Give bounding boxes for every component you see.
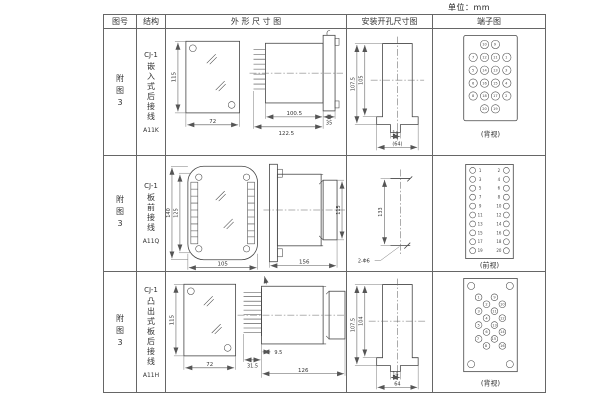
dim-front-w: 72 (206, 361, 213, 367)
dim-body-len: 126 (298, 367, 309, 373)
dim-front-inner-h: 125 (174, 208, 180, 217)
dim-inner-h: 105 (358, 75, 364, 84)
header-outline: 外 形 尺 寸 图 (166, 15, 347, 29)
outline-cell-row2: 140 125 105 156 115 (166, 156, 347, 272)
dim-total-w: 64 (394, 381, 400, 387)
outline-drawing-a11k: 115 72 100.5 35 122.5 (166, 29, 346, 156)
structure-text: 凸出式板后接线 (146, 297, 157, 367)
model-code: A11Q (143, 238, 159, 245)
outline-drawing-a11h: 115 72 31.5 9.5 126 (166, 272, 346, 393)
install-cell-row2: 133 2-Φ6 (347, 156, 433, 272)
structure-row1: CJ-1 嵌入式后接线 A11K (137, 29, 166, 156)
install-drawing-a11h: 107.5 104 14 64 (347, 272, 432, 393)
fig-no-text: 附图3 (115, 74, 126, 111)
view-label: (背视) (481, 378, 501, 387)
outline-drawing-a11q: 140 125 105 156 115 (166, 156, 346, 272)
dim-pin-len: 31.5 (247, 363, 258, 369)
header-fig-no: 图号 (104, 15, 137, 29)
dim-front-outer-h: 140 (166, 208, 172, 217)
terminal-numbers-left: 135791113151719 (478, 167, 484, 252)
terminal-drawing-a11q: 135791113151719 2468101214161820 (前视) (433, 156, 545, 272)
dim-side-h: 115 (336, 205, 342, 214)
terminal-cell-row3: 1357 2468 9111315 10121416 (背视) (433, 272, 546, 393)
terminal-cell-row1: 109 712111 514133 616154 818172 2019 (背视… (433, 29, 546, 156)
fig-no-row2: 附图3 (104, 156, 137, 272)
model-label: CJ-1 (144, 182, 158, 190)
outline-cell-row3: 115 72 31.5 9.5 126 (166, 272, 347, 393)
install-cell-row3: 107.5 104 14 64 (347, 272, 433, 393)
dim-slot-w: 14 (392, 371, 398, 377)
model-label: CJ-1 (144, 286, 158, 294)
dim-side-len: 156 (299, 259, 310, 265)
dim-hole-spacing: 133 (378, 207, 384, 216)
dim-holes: 2-Φ6 (358, 258, 370, 264)
dim-flange: 35 (326, 120, 332, 126)
header-terminal: 端子图 (433, 15, 546, 29)
spec-table: 图号 结构 外 形 尺 寸 图 安装开孔尺寸图 端子图 附图3 CJ-1 嵌入式… (103, 14, 546, 393)
model-code: A11H (143, 372, 159, 379)
dim-total: 122.5 (279, 130, 295, 136)
dim-body-len: 100.5 (286, 110, 302, 116)
model-code: A11K (143, 127, 159, 134)
header-install: 安装开孔尺寸图 (347, 15, 433, 29)
dim-outer-h: 107.5 (350, 77, 356, 91)
dim-outer-h: 107.5 (350, 318, 356, 332)
structure-text: 嵌入式后接线 (146, 62, 157, 122)
terminal-numbers: 1357 2468 9111315 10121416 (477, 295, 505, 348)
terminal-drawing-a11k: 109 712111 514133 616154 818172 2019 (背视… (433, 29, 545, 156)
dim-front-w: 72 (209, 118, 216, 124)
fig-no-row1: 附图3 (104, 29, 137, 156)
unit-label: 单位：mm (448, 2, 490, 13)
dim-offset: 9.5 (274, 349, 282, 355)
terminal-cell-row2: 135791113151719 2468101214161820 (前视) (433, 156, 546, 272)
dim-front-w: 105 (217, 261, 227, 267)
terminal-drawing-a11h: 1357 2468 9111315 10121416 (背视) (433, 272, 545, 393)
terminal-numbers: 109 712111 514133 616154 818172 2019 (472, 42, 509, 110)
dim-inner-h: 104 (358, 316, 364, 325)
header-structure: 结构 (137, 15, 166, 29)
terminal-numbers-right: 2468101214161820 (496, 167, 502, 252)
dim-front-h: 115 (169, 314, 175, 324)
install-cell-row1: 107.5 105 14 (64) (347, 29, 433, 156)
dim-slot-w: 14 (392, 130, 398, 136)
outline-cell-row1: 115 72 100.5 35 122.5 (166, 29, 347, 156)
fig-no-text: 附图3 (115, 314, 126, 351)
structure-row2: CJ-1 板前接线 A11Q (137, 156, 166, 272)
structure-row3: CJ-1 凸出式板后接线 A11H (137, 272, 166, 393)
view-label: (前视) (480, 260, 500, 269)
dim-front-h: 115 (171, 71, 177, 81)
install-drawing-a11k: 107.5 105 14 (64) (347, 29, 432, 156)
fig-no-text: 附图3 (115, 195, 126, 232)
view-label: (背视) (481, 129, 501, 138)
structure-text: 板前接线 (146, 193, 157, 233)
fig-no-row3: 附图3 (104, 272, 137, 393)
model-label: CJ-1 (144, 51, 158, 59)
dim-total-w: (64) (392, 141, 402, 147)
install-drawing-a11q: 133 2-Φ6 (347, 156, 432, 272)
